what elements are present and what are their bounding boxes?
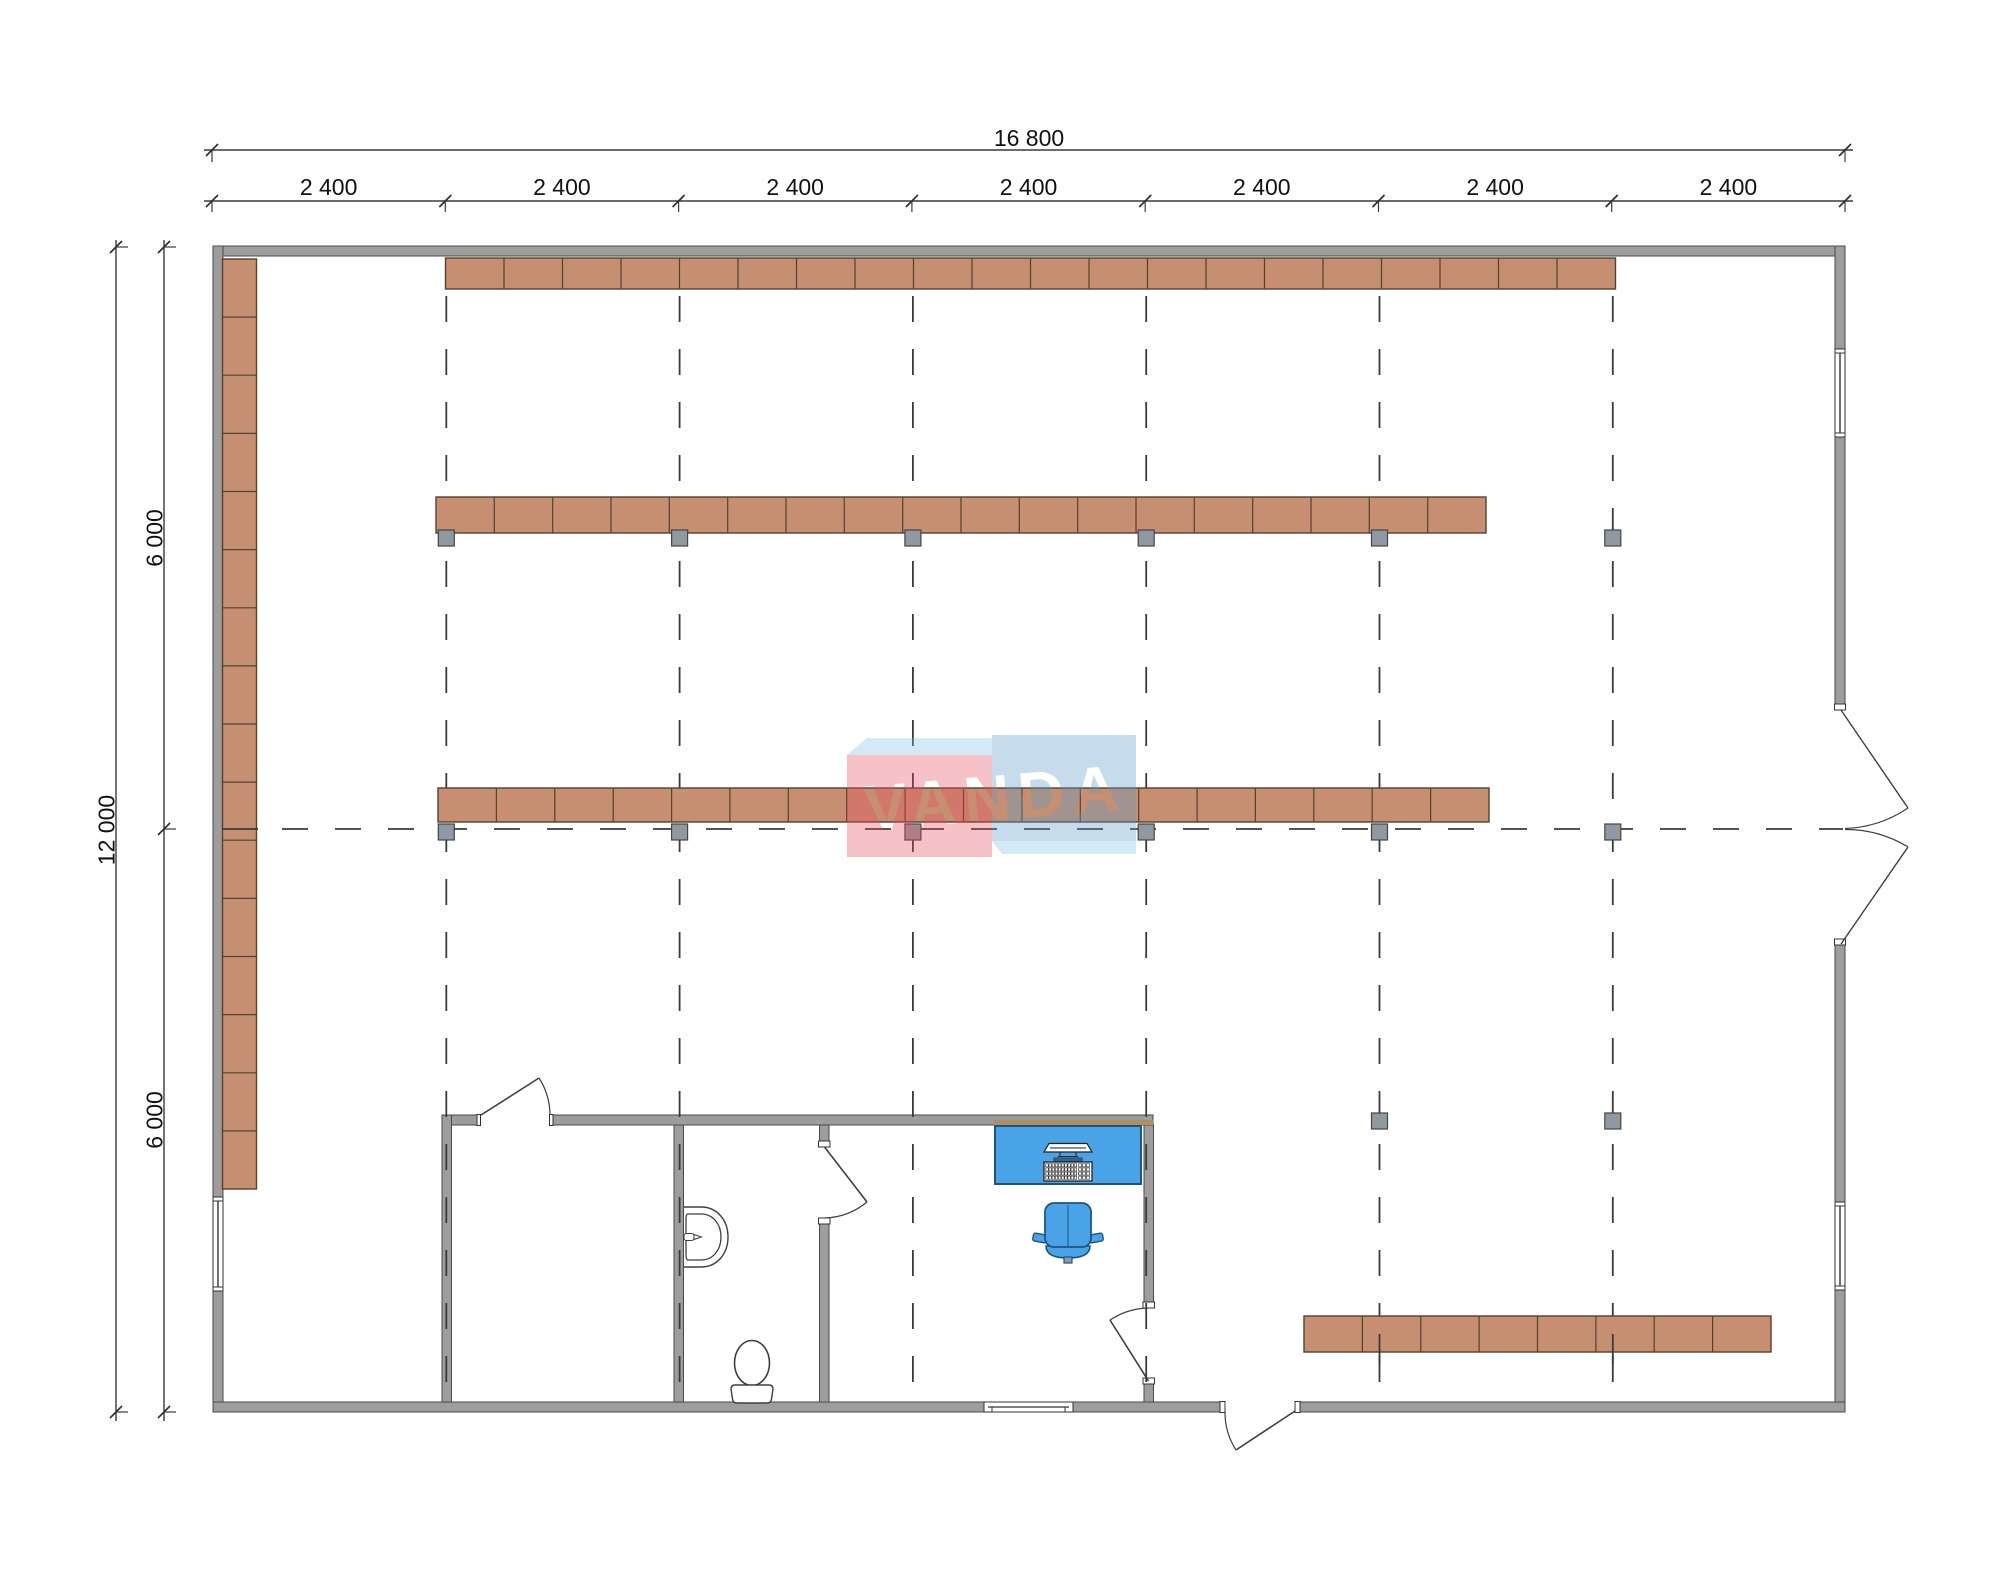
svg-text:2 400: 2 400	[1466, 174, 1524, 200]
svg-text:16 800: 16 800	[994, 125, 1064, 151]
svg-text:2 400: 2 400	[1000, 174, 1058, 200]
svg-text:2 400: 2 400	[1700, 174, 1758, 200]
svg-text:2 400: 2 400	[1233, 174, 1291, 200]
svg-text:12 000: 12 000	[94, 795, 120, 865]
svg-text:6 000: 6 000	[142, 509, 168, 567]
svg-text:2 400: 2 400	[300, 174, 358, 200]
svg-text:2 400: 2 400	[533, 174, 591, 200]
svg-text:6 000: 6 000	[142, 1091, 168, 1149]
svg-text:2 400: 2 400	[766, 174, 824, 200]
